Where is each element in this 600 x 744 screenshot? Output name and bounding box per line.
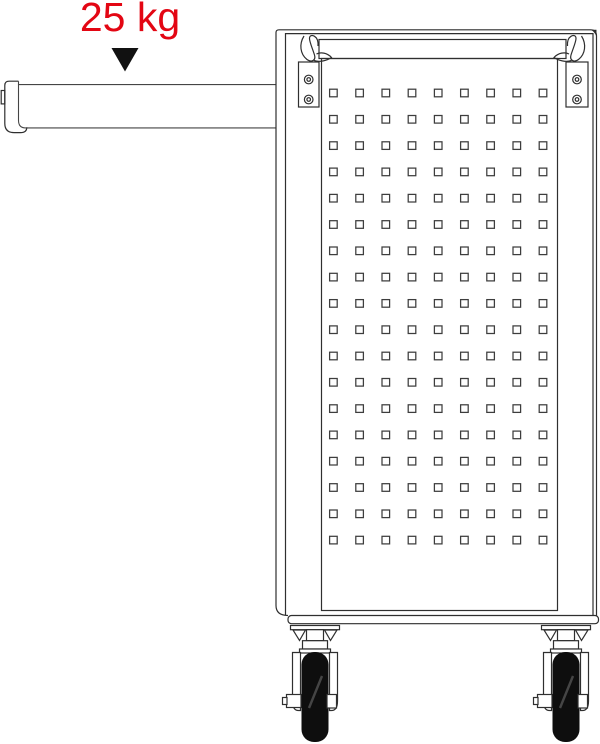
pegboard-hole — [408, 221, 416, 229]
caster-left — [283, 626, 340, 743]
pegboard-hole — [461, 536, 469, 544]
pegboard-hole — [382, 326, 390, 334]
pegboard-hole — [513, 536, 521, 544]
pegboard-hole — [513, 484, 521, 492]
pegboard-hole — [539, 405, 547, 413]
pegboard-hole — [461, 247, 469, 255]
pegboard-hole — [487, 89, 495, 97]
pegboard-hole — [408, 168, 416, 176]
pegboard-hole — [330, 273, 338, 281]
pegboard-hole — [461, 300, 469, 308]
pegboard-hole — [330, 194, 338, 202]
pegboard-hole — [461, 89, 469, 97]
pegboard-hole — [356, 116, 364, 124]
pegboard-hole — [487, 536, 495, 544]
pegboard-hole — [382, 116, 390, 124]
pegboard-hole — [356, 168, 364, 176]
arm-end-hook — [5, 81, 27, 132]
pegboard-hole — [461, 510, 469, 518]
pegboard-hole — [513, 457, 521, 465]
left-wall-fillet — [276, 606, 288, 616]
pegboard-hole — [434, 405, 442, 413]
pegboard-hole — [539, 300, 547, 308]
pegboard-hole — [434, 168, 442, 176]
pegboard-hole — [434, 247, 442, 255]
bracket-curl — [301, 36, 318, 61]
pegboard-hole — [356, 221, 364, 229]
pegboard-hole — [434, 457, 442, 465]
pegboard-hole — [330, 116, 338, 124]
pegboard-hole — [382, 536, 390, 544]
pegboard-hole — [513, 168, 521, 176]
pegboard-hole — [487, 247, 495, 255]
pegboard-hole — [434, 221, 442, 229]
pegboard-hole — [408, 326, 416, 334]
pegboard-hole — [461, 405, 469, 413]
pegboard-hole — [330, 431, 338, 439]
corner-bracket-right — [554, 36, 588, 107]
top-rail — [319, 40, 566, 59]
pegboard-hole — [356, 405, 364, 413]
technical-drawing-page: 25 kg — [0, 0, 600, 744]
pegboard-hole — [539, 457, 547, 465]
pegboard-holes — [330, 89, 547, 544]
bracket-curl-tail — [314, 53, 332, 61]
bracket-plate — [566, 62, 588, 107]
pegboard-hole — [408, 194, 416, 202]
pegboard-hole — [434, 484, 442, 492]
pegboard-hole — [461, 326, 469, 334]
pegboard-hole — [356, 300, 364, 308]
pegboard-hole — [461, 457, 469, 465]
pegboard-hole — [330, 300, 338, 308]
pegboard-hole — [539, 142, 547, 150]
pegboard-hole — [539, 116, 547, 124]
pegboard-hole — [513, 116, 521, 124]
pegboard-hole — [408, 247, 416, 255]
load-point-arrow-icon — [112, 48, 139, 72]
pegboard-hole — [434, 89, 442, 97]
pegboard-hole — [408, 89, 416, 97]
pegboard-hole — [382, 510, 390, 518]
pegboard-hole — [539, 247, 547, 255]
pegboard-hole — [513, 510, 521, 518]
pegboard-hole — [356, 326, 364, 334]
pegboard-hole — [408, 405, 416, 413]
pegboard-hole — [330, 457, 338, 465]
pegboard-hole — [434, 352, 442, 360]
pegboard-hole — [539, 221, 547, 229]
arm-end-clip — [1, 91, 5, 104]
pegboard-hole — [461, 273, 469, 281]
pegboard-hole — [487, 326, 495, 334]
pegboard-hole — [513, 431, 521, 439]
pegboard-hole — [382, 431, 390, 439]
pegboard-hole — [330, 510, 338, 518]
arm-top-edge — [19, 81, 277, 84]
pegboard-hole — [461, 379, 469, 387]
pegboard-hole — [356, 457, 364, 465]
pegboard-hole — [513, 89, 521, 97]
pegboard-hole — [461, 142, 469, 150]
pegboard-hole — [539, 484, 547, 492]
pegboard-hole — [487, 352, 495, 360]
pegboard-hole — [382, 300, 390, 308]
pegboard-hole — [356, 352, 364, 360]
pegboard-hole — [382, 457, 390, 465]
pegboard-hole — [539, 510, 547, 518]
pegboard-hole — [330, 484, 338, 492]
pegboard-hole — [513, 326, 521, 334]
bracket-plate — [299, 62, 320, 107]
pegboard-hole — [330, 221, 338, 229]
pegboard-hole — [408, 379, 416, 387]
pegboard-hole — [330, 142, 338, 150]
base-rail — [288, 616, 599, 624]
pegboard-hole — [539, 536, 547, 544]
corner-bracket-left — [299, 36, 332, 107]
pegboard-hole — [434, 510, 442, 518]
pegboard-hole — [461, 431, 469, 439]
arm-bottom-edge — [19, 85, 277, 128]
pegboard-hole — [487, 194, 495, 202]
pegboard-hole — [487, 300, 495, 308]
pegboard-hole — [487, 405, 495, 413]
pegboard-hole — [461, 221, 469, 229]
pegboard-hole — [539, 352, 547, 360]
pegboard-hole — [513, 273, 521, 281]
pegboard-hole — [382, 168, 390, 176]
pegboard-hole — [382, 142, 390, 150]
pegboard-hole — [461, 116, 469, 124]
pegboard-hole — [539, 379, 547, 387]
pegboard-hole — [382, 247, 390, 255]
pegboard-hole — [487, 379, 495, 387]
pegboard-hole — [330, 352, 338, 360]
pegboard-hole — [461, 194, 469, 202]
pegboard-hole — [487, 116, 495, 124]
pegboard-hole — [434, 142, 442, 150]
pegboard-hole — [356, 379, 364, 387]
pegboard-hole — [408, 142, 416, 150]
pegboard-panel — [322, 59, 558, 611]
pegboard-hole — [382, 352, 390, 360]
pegboard-hole — [382, 484, 390, 492]
pegboard-hole — [513, 221, 521, 229]
pegboard-hole — [513, 247, 521, 255]
pegboard-hole — [382, 194, 390, 202]
pegboard-hole — [487, 142, 495, 150]
pegboard-hole — [330, 326, 338, 334]
pegboard-hole — [408, 536, 416, 544]
pegboard-hole — [539, 326, 547, 334]
pegboard-hole — [434, 326, 442, 334]
pegboard-hole — [434, 431, 442, 439]
pegboard-hole — [434, 379, 442, 387]
pegboard-hole — [461, 352, 469, 360]
pegboard-hole — [461, 168, 469, 176]
pegboard-hole — [356, 89, 364, 97]
pegboard-hole — [356, 510, 364, 518]
pegboard-hole — [408, 431, 416, 439]
pegboard-hole — [330, 89, 338, 97]
pegboard-hole — [487, 431, 495, 439]
pegboard-hole — [408, 352, 416, 360]
pegboard-hole — [513, 352, 521, 360]
pegboard-hole — [539, 194, 547, 202]
pegboard-hole — [382, 405, 390, 413]
pegboard-hole — [382, 379, 390, 387]
pegboard-hole — [408, 457, 416, 465]
pegboard-hole — [434, 273, 442, 281]
pegboard-hole — [330, 168, 338, 176]
pegboard-hole — [356, 273, 364, 281]
pegboard-hole — [382, 273, 390, 281]
pegboard-hole — [330, 405, 338, 413]
trolley-drawing — [0, 0, 600, 744]
pegboard-hole — [487, 221, 495, 229]
pegboard-hole — [513, 194, 521, 202]
pegboard-hole — [434, 194, 442, 202]
pegboard-hole — [382, 221, 390, 229]
pegboard-hole — [487, 273, 495, 281]
pegboard-hole — [356, 142, 364, 150]
pegboard-hole — [487, 484, 495, 492]
pegboard-hole — [461, 484, 469, 492]
pegboard-hole — [539, 431, 547, 439]
pegboard-hole — [434, 536, 442, 544]
pegboard-hole — [408, 273, 416, 281]
pegboard-hole — [356, 247, 364, 255]
pegboard-hole — [408, 300, 416, 308]
pegboard-hole — [382, 89, 390, 97]
pegboard-hole — [513, 405, 521, 413]
pegboard-hole — [356, 194, 364, 202]
pegboard-hole — [513, 142, 521, 150]
pegboard-hole — [408, 510, 416, 518]
pegboard-hole — [356, 431, 364, 439]
pegboard-hole — [434, 116, 442, 124]
pegboard-hole — [330, 379, 338, 387]
pegboard-hole — [487, 510, 495, 518]
pegboard-hole — [513, 300, 521, 308]
pegboard-hole — [330, 247, 338, 255]
bracket-curl-tail — [554, 53, 572, 61]
pegboard-hole — [487, 457, 495, 465]
pegboard-hole — [408, 116, 416, 124]
pegboard-hole — [539, 89, 547, 97]
pegboard-hole — [487, 168, 495, 176]
pegboard-hole — [356, 484, 364, 492]
caster-right — [534, 626, 591, 743]
pegboard-hole — [539, 273, 547, 281]
pegboard-hole — [408, 484, 416, 492]
pegboard-hole — [330, 536, 338, 544]
pegboard-hole — [434, 300, 442, 308]
bracket-curl — [567, 36, 584, 61]
pegboard-hole — [539, 168, 547, 176]
wall-arm — [1, 81, 276, 132]
pegboard-hole — [513, 379, 521, 387]
pegboard-hole — [356, 536, 364, 544]
